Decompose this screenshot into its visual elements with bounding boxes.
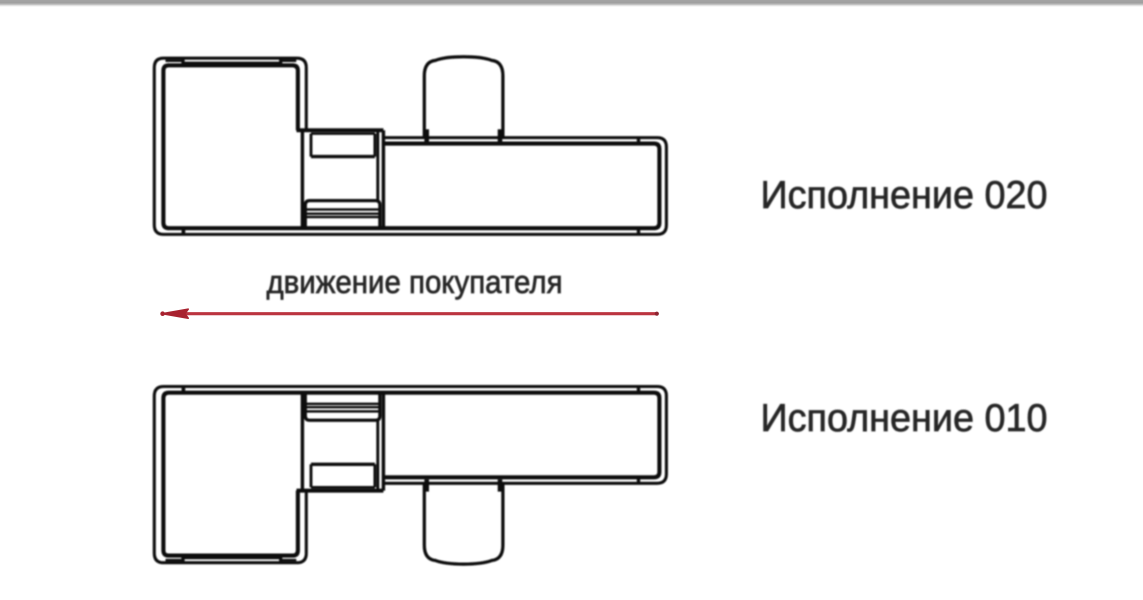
svg-text:Исполнение 010: Исполнение 010 bbox=[761, 397, 1048, 440]
svg-text:движение покупателя: движение покупателя bbox=[267, 264, 563, 300]
svg-text:Исполнение 020: Исполнение 020 bbox=[761, 174, 1048, 217]
